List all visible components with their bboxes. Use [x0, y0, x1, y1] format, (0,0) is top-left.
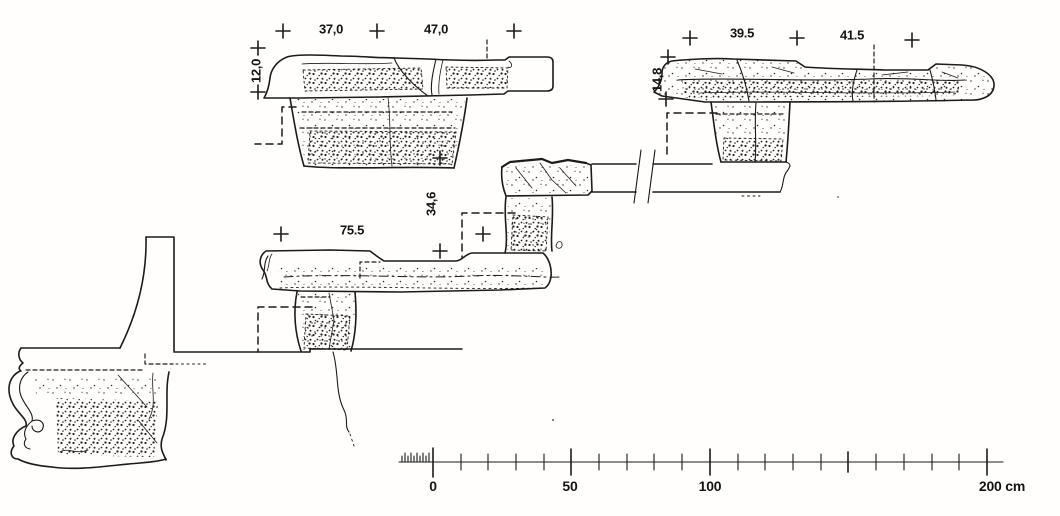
- dimension-label-14-8: 14,8: [650, 68, 665, 92]
- dimension-label-41-5: 41.5: [840, 28, 864, 43]
- technical-section-drawing: [0, 0, 1060, 516]
- dimension-label-75-5: 75.5: [340, 223, 364, 238]
- dimension-label-47-0: 47,0: [424, 22, 448, 37]
- dimension-label-39-5: 39.5: [730, 26, 754, 41]
- middle-seat-slab-profile: [260, 250, 560, 446]
- scale-tick-100: 100: [699, 478, 722, 494]
- scale-tick-50: 50: [562, 478, 577, 494]
- scan-specks: [552, 196, 839, 421]
- dimension-label-12-0: 12,0: [249, 59, 264, 83]
- dimension-label-37-0: 37,0: [319, 22, 343, 37]
- upper-left-step-profile: [264, 55, 553, 168]
- middle-step-block: [502, 159, 592, 253]
- scale-tick-200cm: 200 cm: [979, 478, 1025, 494]
- drawing-sheet: 37,0 47,0 12,0 39.5 41.5 14,8 75.5 34,6 …: [0, 0, 1060, 516]
- scale-bar: [399, 448, 1003, 477]
- scale-tick-0: 0: [429, 478, 437, 494]
- dimension-label-34-6: 34,6: [424, 192, 439, 216]
